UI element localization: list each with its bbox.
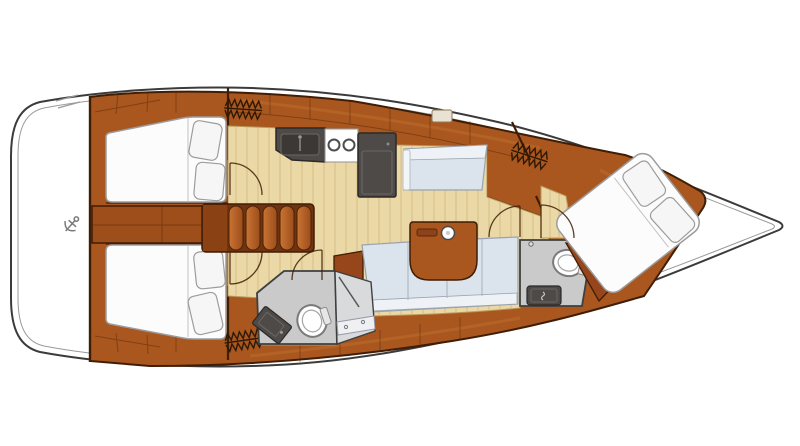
- step: [263, 206, 277, 250]
- refrigerator: [358, 133, 396, 197]
- table-fiddle: [417, 229, 437, 236]
- bench-armrest: [403, 150, 410, 190]
- step: [280, 206, 294, 250]
- steps-landing: [203, 205, 227, 251]
- nav-bench: [403, 145, 487, 190]
- deck-hatch: [432, 110, 452, 122]
- burner-icon: [329, 140, 340, 151]
- step: [246, 206, 260, 250]
- pillow: [188, 120, 223, 161]
- pillow: [193, 250, 226, 290]
- cup-holder-icon: [446, 231, 450, 235]
- step: [297, 206, 311, 250]
- companionway-steps: [202, 204, 314, 252]
- refrigerator-latch: [387, 143, 390, 146]
- burner-icon: [344, 140, 355, 151]
- faucet-icon: [298, 135, 302, 139]
- pillow: [193, 162, 225, 201]
- floor-plan-canvas: [0, 0, 800, 446]
- step: [229, 206, 243, 250]
- door-stop: [529, 242, 533, 246]
- boat-floor-plan: [0, 0, 800, 446]
